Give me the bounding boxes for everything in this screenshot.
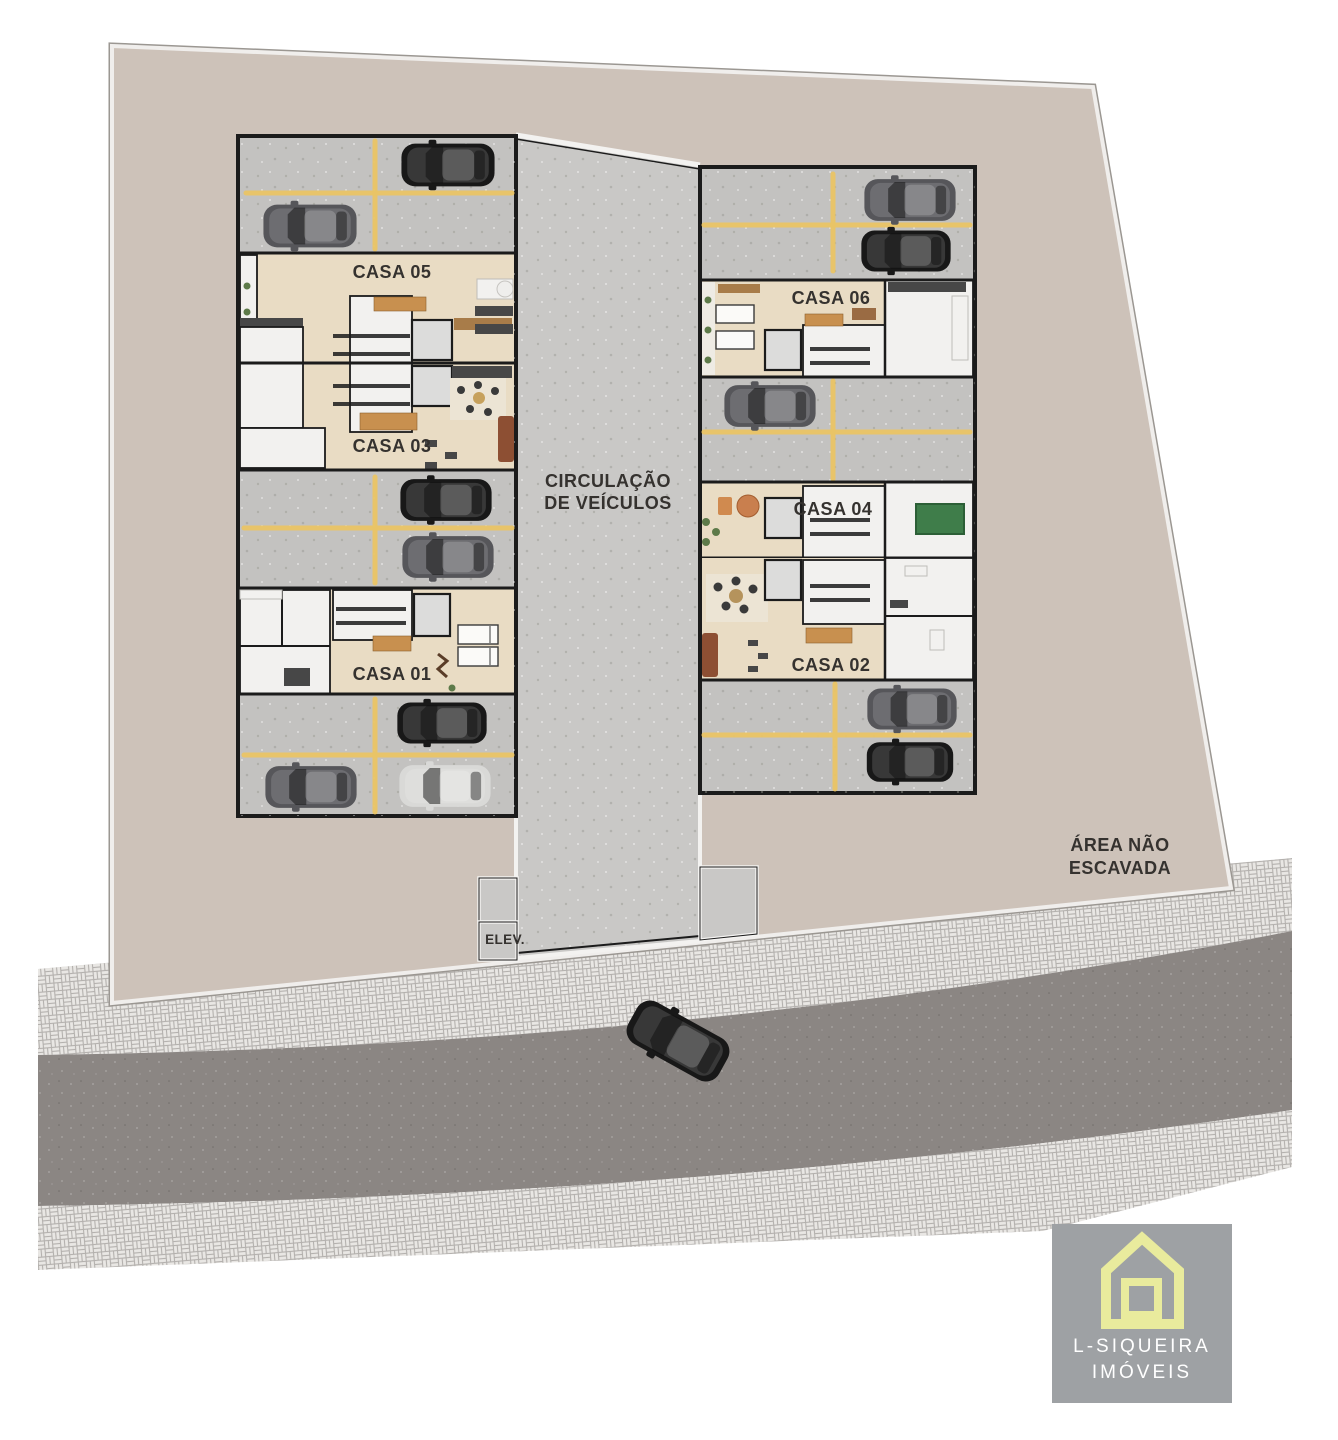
car-icon (265, 762, 356, 811)
elevator-room: ELEV. (479, 878, 525, 960)
casa-01-unit: CASA 01 (238, 588, 516, 694)
svg-text:DE VEÍCULOS: DE VEÍCULOS (544, 492, 672, 513)
car-icon (861, 227, 950, 275)
car-icon (397, 699, 486, 747)
vehicle-circulation-strip (516, 135, 700, 958)
svg-text:ESCAVADA: ESCAVADA (1069, 858, 1171, 878)
casa-02-label: CASA 02 (792, 655, 871, 675)
stair-room (700, 867, 757, 940)
casa-01-label: CASA 01 (353, 664, 432, 684)
car-icon (864, 175, 955, 224)
site-plan-page: ELEV. (0, 0, 1338, 1440)
left-building-block: CASA 05 CASA 03 (238, 136, 516, 816)
car-icon (263, 201, 356, 251)
site-plan-rendering: ELEV. (0, 0, 1338, 1440)
casa-05-unit: CASA 05 CASA 03 (238, 253, 516, 470)
casa-06-label: CASA 06 (792, 288, 871, 308)
logo: L-SIQUEIRA IMÓVEIS (1052, 1224, 1232, 1403)
car-icon (867, 739, 953, 786)
logo-name-line2: IMÓVEIS (1092, 1361, 1192, 1383)
car-icon (399, 761, 490, 810)
right-building-block: CASA 06 CASA 04 (700, 167, 975, 793)
casa-04-label: CASA 04 (794, 499, 873, 519)
car-icon (724, 381, 815, 430)
casa-06-unit: CASA 06 (700, 280, 975, 377)
casa-04-unit: CASA 04 (700, 482, 975, 558)
car-icon (867, 685, 956, 733)
svg-text:ÁREA NÃO: ÁREA NÃO (1070, 834, 1169, 855)
casa-03-label: CASA 03 (353, 436, 432, 456)
car-icon (402, 532, 493, 581)
casa-02-unit: CASA 02 (700, 558, 975, 680)
svg-text:CIRCULAÇÃO: CIRCULAÇÃO (545, 470, 671, 491)
elevator-label: ELEV. (485, 932, 525, 947)
car-icon (400, 475, 491, 524)
car-icon (401, 140, 494, 190)
casa-05-label: CASA 05 (353, 262, 432, 282)
logo-name-line1: L-SIQUEIRA (1073, 1336, 1211, 1357)
